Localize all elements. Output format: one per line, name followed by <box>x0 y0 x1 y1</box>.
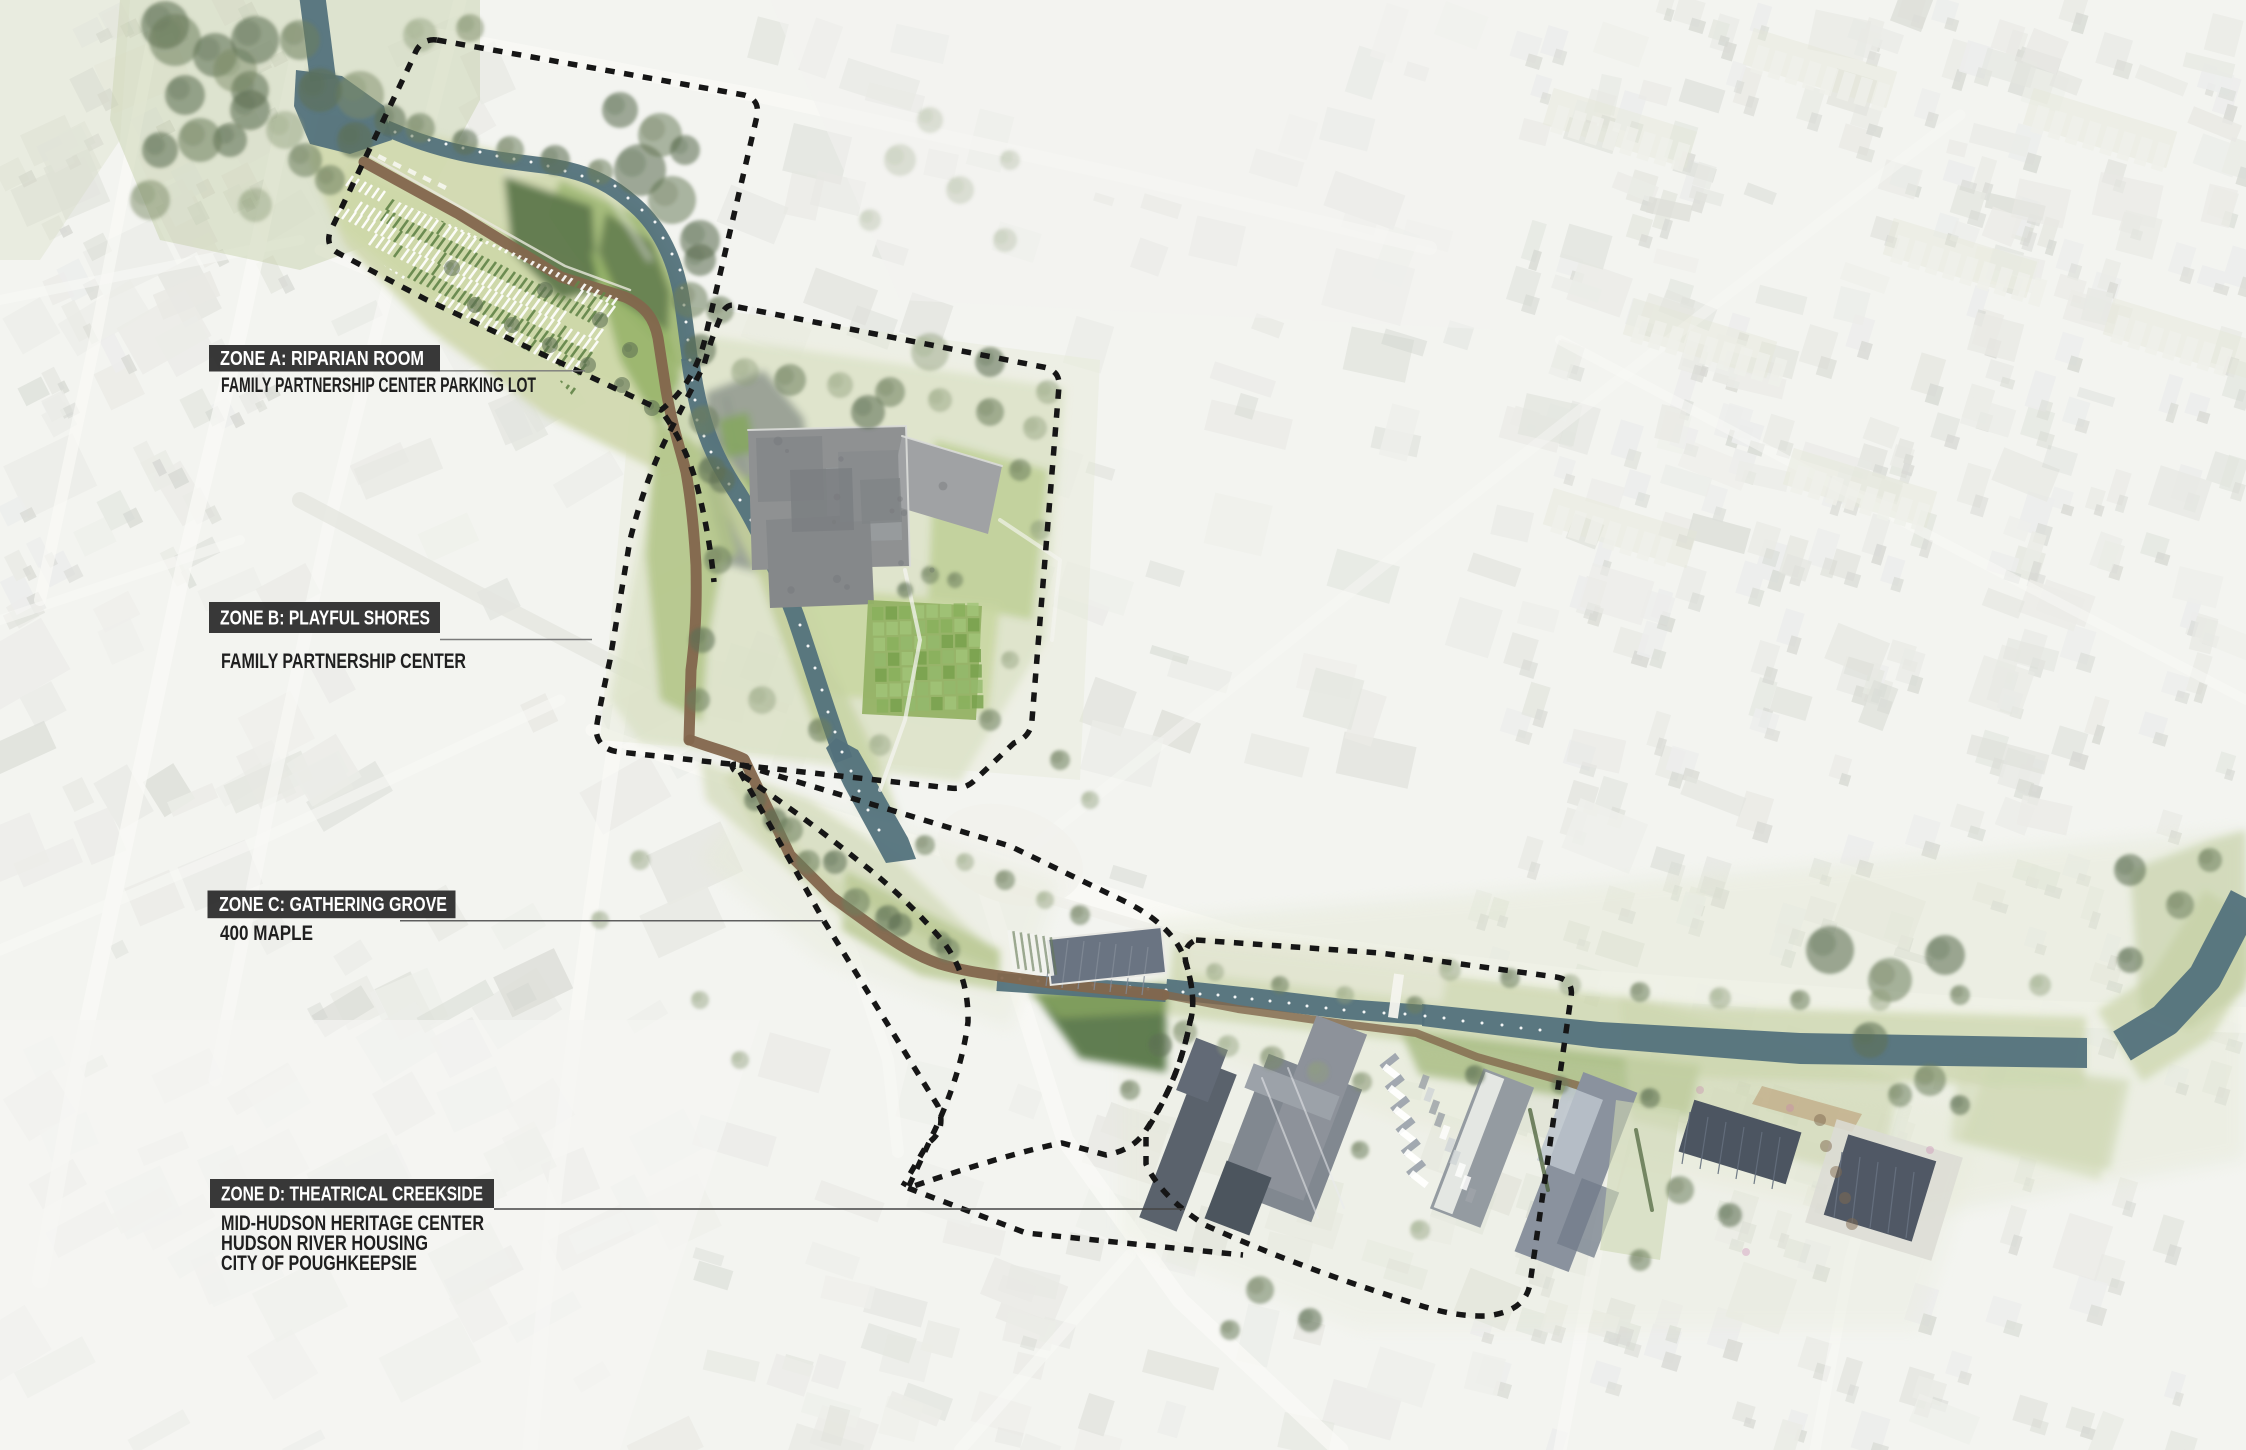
svg-text:FAMILY PARTNERSHIP CENTER PARK: FAMILY PARTNERSHIP CENTER PARKING LOT <box>221 374 536 397</box>
svg-text:ZONE D: THEATRICAL CREEKSIDE: ZONE D: THEATRICAL CREEKSIDE <box>221 1183 483 1205</box>
svg-text:ZONE B: PLAYFUL SHORES: ZONE B: PLAYFUL SHORES <box>220 607 430 629</box>
svg-text:FAMILY PARTNERSHIP CENTER: FAMILY PARTNERSHIP CENTER <box>221 650 466 673</box>
svg-text:CITY OF POUGHKEEPSIE: CITY OF POUGHKEEPSIE <box>221 1252 417 1275</box>
svg-text:ZONE A: RIPARIAN ROOM: ZONE A: RIPARIAN ROOM <box>220 348 424 370</box>
svg-text:ZONE C: GATHERING GROVE: ZONE C: GATHERING GROVE <box>219 894 447 916</box>
svg-text:400 MAPLE: 400 MAPLE <box>220 922 313 945</box>
